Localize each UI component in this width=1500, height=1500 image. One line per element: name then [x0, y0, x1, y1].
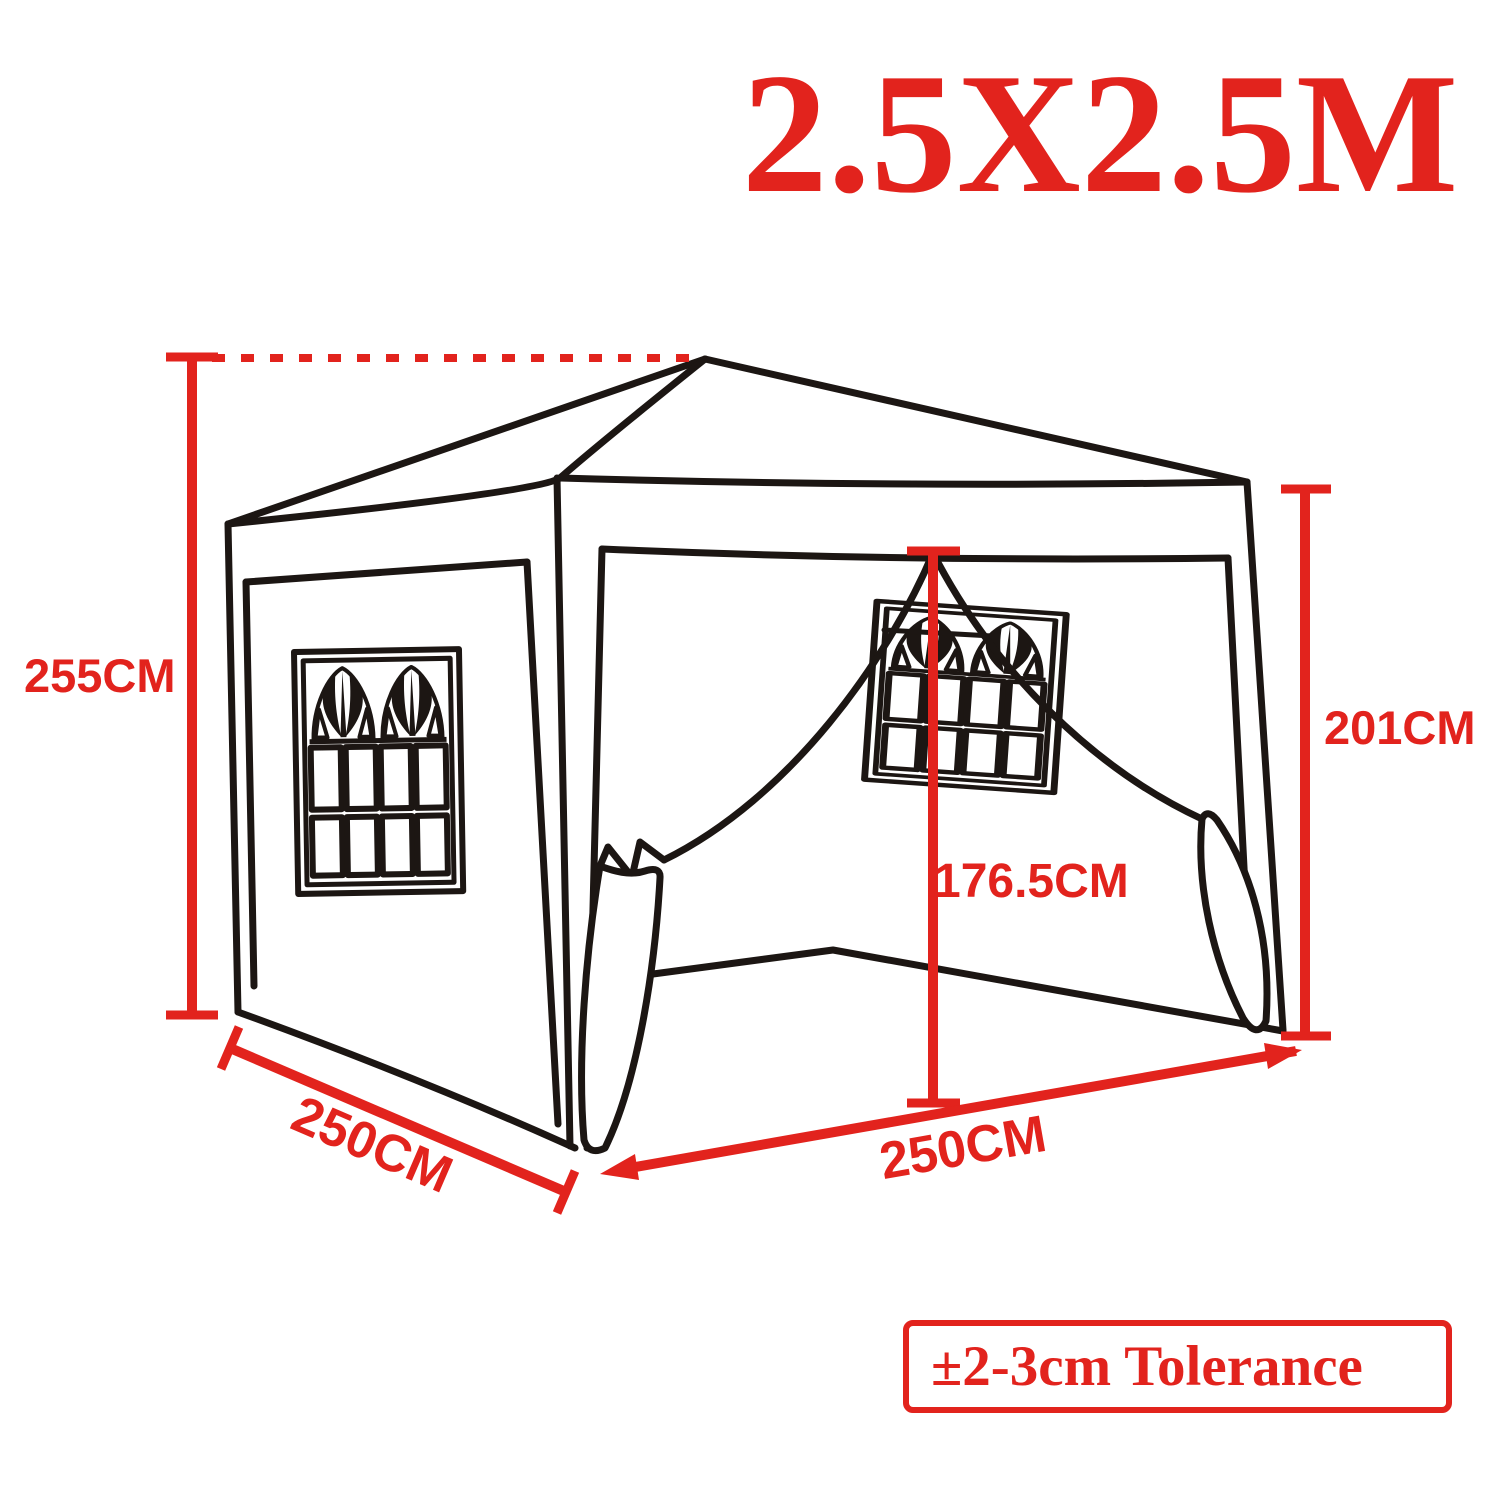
- right-rolled-curtain: [1201, 814, 1267, 1030]
- left-wall-inner-seam-right: [527, 562, 558, 1124]
- left-wall-left-edge: [228, 524, 238, 1012]
- roof-right-edge: [705, 359, 1247, 482]
- front-left-corner-post: [557, 478, 570, 1146]
- interior-floor-line: [653, 950, 1283, 1031]
- tolerance-box: ±2-3cm Tolerance: [903, 1320, 1452, 1413]
- label-overall-height: 255CM: [24, 652, 176, 699]
- front-eave: [560, 478, 1247, 484]
- arrowhead-left: [600, 1154, 639, 1180]
- page-title: 2.5X2.5M: [650, 48, 1500, 220]
- label-wall-height: 201CM: [1324, 704, 1476, 751]
- left-wall-window: [294, 649, 463, 894]
- left-wall-inner-seam-left: [246, 582, 254, 986]
- door-left-drape: [664, 553, 933, 860]
- gazebo-dimension-diagram: 2.5X2.5M 255CM 201CM 176.5CM 250CM 250CM…: [0, 0, 1500, 1500]
- tolerance-text: ±2-3cm Tolerance: [931, 1334, 1363, 1399]
- left-rolled-curtain: [582, 866, 660, 1151]
- left-wall-inner-seam-top: [246, 562, 527, 582]
- label-door-height: 176.5CM: [934, 858, 1129, 906]
